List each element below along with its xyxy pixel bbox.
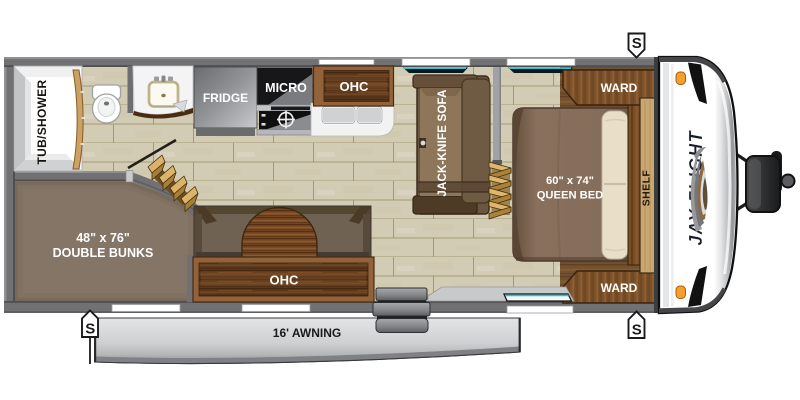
svg-text:48" x 76": 48" x 76": [76, 231, 130, 245]
svg-text:SHELF: SHELF: [641, 170, 653, 207]
svg-text:WARD: WARD: [601, 81, 638, 95]
svg-text:60" x 74": 60" x 74": [546, 175, 594, 187]
svg-text:S: S: [85, 321, 95, 338]
svg-text:QUEEN BED: QUEEN BED: [537, 190, 604, 202]
svg-text:S: S: [632, 322, 642, 339]
svg-text:JACK-KNIFE SOFA: JACK-KNIFE SOFA: [437, 89, 449, 196]
svg-text:S: S: [632, 35, 642, 52]
svg-text:WARD: WARD: [601, 281, 638, 295]
svg-text:MICRO: MICRO: [265, 81, 307, 95]
svg-text:FRIDGE: FRIDGE: [203, 91, 248, 105]
svg-text:OHC: OHC: [340, 79, 370, 94]
svg-text:OHC: OHC: [270, 273, 300, 288]
svg-text:16' AWNING: 16' AWNING: [273, 326, 341, 340]
svg-text:TUB/SHOWER: TUB/SHOWER: [35, 79, 49, 164]
svg-text:DOUBLE BUNKS: DOUBLE BUNKS: [53, 246, 154, 260]
